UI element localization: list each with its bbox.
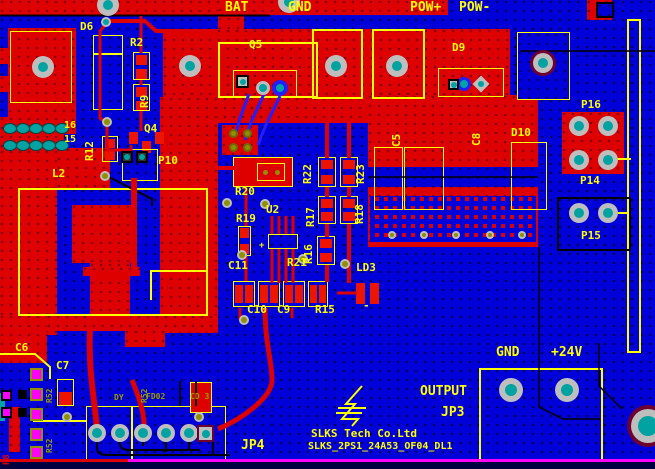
via[interactable] xyxy=(245,145,250,150)
oval-pad[interactable] xyxy=(16,140,30,151)
company-logo xyxy=(342,386,362,426)
through-hole-pad[interactable] xyxy=(103,0,113,10)
via[interactable] xyxy=(275,170,280,175)
designator-q5[interactable]: Q5 xyxy=(249,39,262,51)
through-hole-pad[interactable] xyxy=(392,61,402,71)
net-label-pow-plus[interactable]: POW+ xyxy=(410,1,441,15)
designator-c6[interactable]: C6 xyxy=(15,342,28,354)
through-hole-pad[interactable] xyxy=(115,428,125,438)
via[interactable] xyxy=(454,233,458,237)
through-hole-pad[interactable] xyxy=(505,384,517,396)
pad-hole[interactable] xyxy=(240,79,246,85)
net-label-bat[interactable]: BAT xyxy=(225,1,248,15)
via[interactable] xyxy=(390,233,394,237)
via[interactable] xyxy=(422,233,426,237)
designator-l2[interactable]: L2 xyxy=(52,168,65,180)
designator-r2[interactable]: R2 xyxy=(130,37,143,49)
through-hole-pad[interactable] xyxy=(603,208,613,218)
designator-jp3[interactable]: JP3 xyxy=(441,406,464,420)
through-hole-pad[interactable] xyxy=(184,428,194,438)
designator-jp4[interactable]: JP4 xyxy=(241,439,264,453)
net-label-output[interactable]: OUTPUT xyxy=(420,385,467,399)
designator-c7[interactable]: C7 xyxy=(56,360,69,372)
pad-hole[interactable] xyxy=(478,81,484,87)
designator-c8[interactable]: C8 xyxy=(471,133,483,146)
oval-pad[interactable] xyxy=(42,140,56,151)
via[interactable] xyxy=(241,317,247,323)
oval-pad[interactable] xyxy=(3,140,17,151)
via[interactable] xyxy=(196,414,202,420)
designator-r12[interactable]: R12 xyxy=(84,141,96,161)
designator-d6[interactable]: D6 xyxy=(80,21,93,33)
bottom-pad[interactable] xyxy=(18,408,27,417)
via[interactable] xyxy=(263,170,268,175)
designator-c9[interactable]: C9 xyxy=(277,304,290,316)
designator-q4[interactable]: Q4 xyxy=(144,123,157,135)
bottom-pad[interactable] xyxy=(1,390,12,401)
via[interactable] xyxy=(231,131,236,136)
net-label-gnd[interactable]: GND xyxy=(288,1,311,15)
pad-hole[interactable] xyxy=(124,154,130,160)
designator-r23[interactable]: R23 xyxy=(355,164,367,184)
designator-r18[interactable]: R18 xyxy=(354,204,366,224)
through-hole-pad[interactable] xyxy=(138,428,148,438)
oval-pad[interactable] xyxy=(29,123,43,134)
through-hole-pad[interactable] xyxy=(574,208,584,218)
designator-r20[interactable]: R20 xyxy=(235,186,255,198)
via[interactable] xyxy=(64,414,70,420)
via[interactable] xyxy=(224,200,230,206)
designator-p14[interactable]: P14 xyxy=(580,175,600,187)
pad-hole[interactable] xyxy=(139,154,145,160)
designator-r16[interactable]: R16 xyxy=(303,244,315,264)
pad-hole[interactable] xyxy=(202,430,210,438)
designator-p15[interactable]: P15 xyxy=(581,230,601,242)
designator-d10[interactable]: D10 xyxy=(511,127,531,139)
designator-u2[interactable]: U2 xyxy=(266,204,279,216)
bottom-pad[interactable] xyxy=(18,390,27,399)
bottom-silk-fd02[interactable]: FD02 xyxy=(146,392,165,401)
oval-pad[interactable] xyxy=(29,140,43,151)
through-hole-pad[interactable] xyxy=(92,428,102,438)
designator-r9[interactable]: R9 xyxy=(139,95,151,108)
through-hole-pad[interactable] xyxy=(638,416,655,436)
through-hole-pad[interactable] xyxy=(574,155,584,165)
through-hole-pad[interactable] xyxy=(538,58,548,68)
through-hole-pad[interactable] xyxy=(259,84,267,92)
via[interactable] xyxy=(245,131,250,136)
through-hole-pad[interactable] xyxy=(561,384,573,396)
bottom-pad[interactable] xyxy=(30,368,43,381)
bottom-silk-r52[interactable]: R52 xyxy=(45,439,54,453)
through-hole-pad[interactable] xyxy=(460,80,468,88)
via[interactable] xyxy=(520,233,524,237)
designator-r19[interactable]: R19 xyxy=(236,213,256,225)
designator-p10[interactable]: P10 xyxy=(158,155,178,167)
pin-number-15[interactable]: 15 xyxy=(64,134,76,145)
designator-ld3[interactable]: LD3 xyxy=(356,262,376,274)
designator-r8[interactable]: R8 xyxy=(1,454,13,465)
designator-d9[interactable]: D9 xyxy=(452,42,465,54)
designator-p16[interactable]: P16 xyxy=(581,99,601,111)
pad-hole[interactable] xyxy=(451,82,457,88)
via[interactable] xyxy=(239,252,245,258)
via[interactable] xyxy=(104,119,110,125)
via[interactable] xyxy=(488,233,492,237)
through-hole-pad[interactable] xyxy=(185,61,195,71)
bottom-silk-cd3[interactable]: CD 3 xyxy=(190,392,209,401)
oval-pad[interactable] xyxy=(16,123,30,134)
through-hole-pad[interactable] xyxy=(38,62,48,72)
designator-c5[interactable]: C5 xyxy=(391,134,403,147)
u2-plus-mark: + xyxy=(259,240,264,252)
bottom-silk-dy[interactable]: DY xyxy=(114,393,124,402)
pin-number-16[interactable]: 16 xyxy=(64,120,76,131)
bottom-dark-strip xyxy=(0,462,655,469)
titleblock-part-number[interactable]: SLKS_2PS1_24A53_OF04_DL1 xyxy=(308,441,453,452)
designator-r17[interactable]: R17 xyxy=(305,207,317,227)
designator-r15[interactable]: R15 xyxy=(315,304,335,316)
through-hole-pad[interactable] xyxy=(603,121,613,131)
bottom-silk-r52[interactable]: R52 xyxy=(45,389,54,403)
via[interactable] xyxy=(231,145,236,150)
through-hole-pad[interactable] xyxy=(603,155,613,165)
through-hole-pad[interactable] xyxy=(331,61,341,71)
oval-pad[interactable] xyxy=(42,123,56,134)
via[interactable] xyxy=(103,19,109,25)
bottom-pad[interactable] xyxy=(30,388,43,401)
ld3-minus-mark: - xyxy=(363,300,370,312)
pcb-canvas[interactable]: BAT GND POW+ POW- D6 R2 Q5 D9 16 15 Q4 P… xyxy=(0,0,655,469)
bottom-pad[interactable] xyxy=(30,408,43,421)
designator-c10[interactable]: C10 xyxy=(247,304,267,316)
designator-r22[interactable]: R22 xyxy=(302,164,314,184)
net-label-pow-minus[interactable]: POW- xyxy=(459,1,490,15)
titleblock-company[interactable]: SLKS Tech Co.Ltd xyxy=(311,428,417,439)
through-hole-pad[interactable] xyxy=(161,428,171,438)
net-label-gnd-out[interactable]: GND xyxy=(496,346,519,360)
bottom-pad[interactable] xyxy=(30,428,43,441)
bottom-red-line xyxy=(0,459,128,462)
via[interactable] xyxy=(342,261,348,267)
through-hole-pad[interactable] xyxy=(276,84,284,92)
keepout-line xyxy=(128,459,655,462)
through-hole-pad[interactable] xyxy=(574,121,584,131)
bottom-pad[interactable] xyxy=(30,446,43,459)
via[interactable] xyxy=(102,173,108,179)
oval-pad[interactable] xyxy=(3,123,17,134)
bottom-pad[interactable] xyxy=(1,407,12,418)
net-label-24v[interactable]: +24V xyxy=(551,346,582,360)
designator-c11[interactable]: C11 xyxy=(228,260,248,272)
